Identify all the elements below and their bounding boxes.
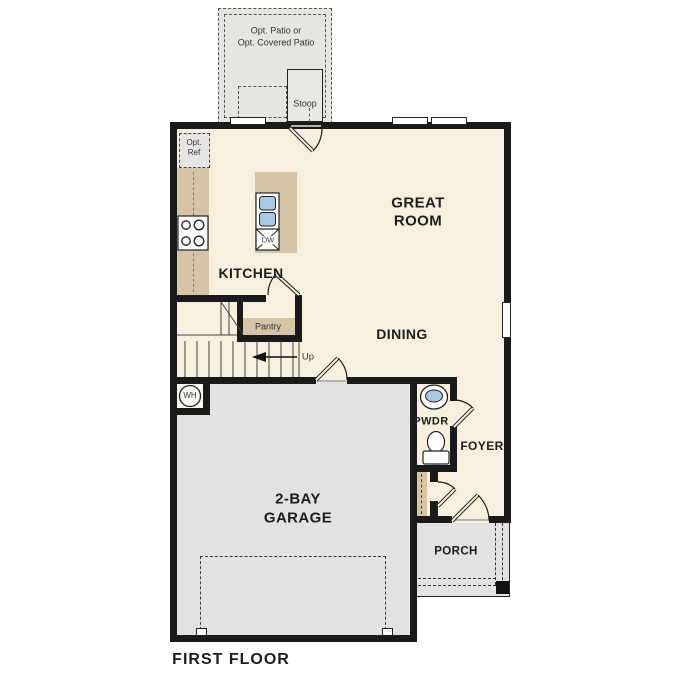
powder-label: PWDR	[413, 417, 448, 428]
powder-sink-icon	[421, 385, 448, 409]
door-back	[290, 128, 322, 151]
stairs-treads	[177, 302, 299, 377]
range-icon	[178, 216, 208, 250]
door-front	[452, 495, 489, 521]
dishwasher-label: DW	[261, 236, 276, 244]
dining-label: DINING	[376, 327, 427, 341]
porch-label: PORCH	[434, 546, 478, 558]
great-room-label-line2: ROOM	[394, 214, 442, 229]
garage-label-line1: 2-BAY	[275, 492, 321, 507]
door-closet	[438, 482, 455, 506]
kitchen-sink-icon	[256, 193, 279, 230]
great-room-label-line1: GREAT	[391, 196, 444, 211]
door-garage-entry	[316, 358, 347, 380]
pantry-label: Pantry	[255, 323, 281, 332]
floor-plan: Opt. Patio or Opt. Covered Patio Stoop O…	[0, 0, 687, 687]
toilet-icon	[423, 432, 449, 465]
door-powder	[454, 400, 473, 427]
door-thresholds	[291, 126, 488, 520]
up-arrow	[252, 352, 297, 362]
foyer-label: FOYER	[460, 440, 503, 452]
plan-title: FIRST FLOOR	[172, 652, 290, 668]
kitchen-label: KITCHEN	[218, 266, 283, 280]
linework-overlay	[0, 0, 687, 687]
water-heater-label: WH	[183, 392, 196, 400]
up-label: Up	[302, 352, 314, 362]
garage-label-line2: GARAGE	[264, 511, 332, 526]
